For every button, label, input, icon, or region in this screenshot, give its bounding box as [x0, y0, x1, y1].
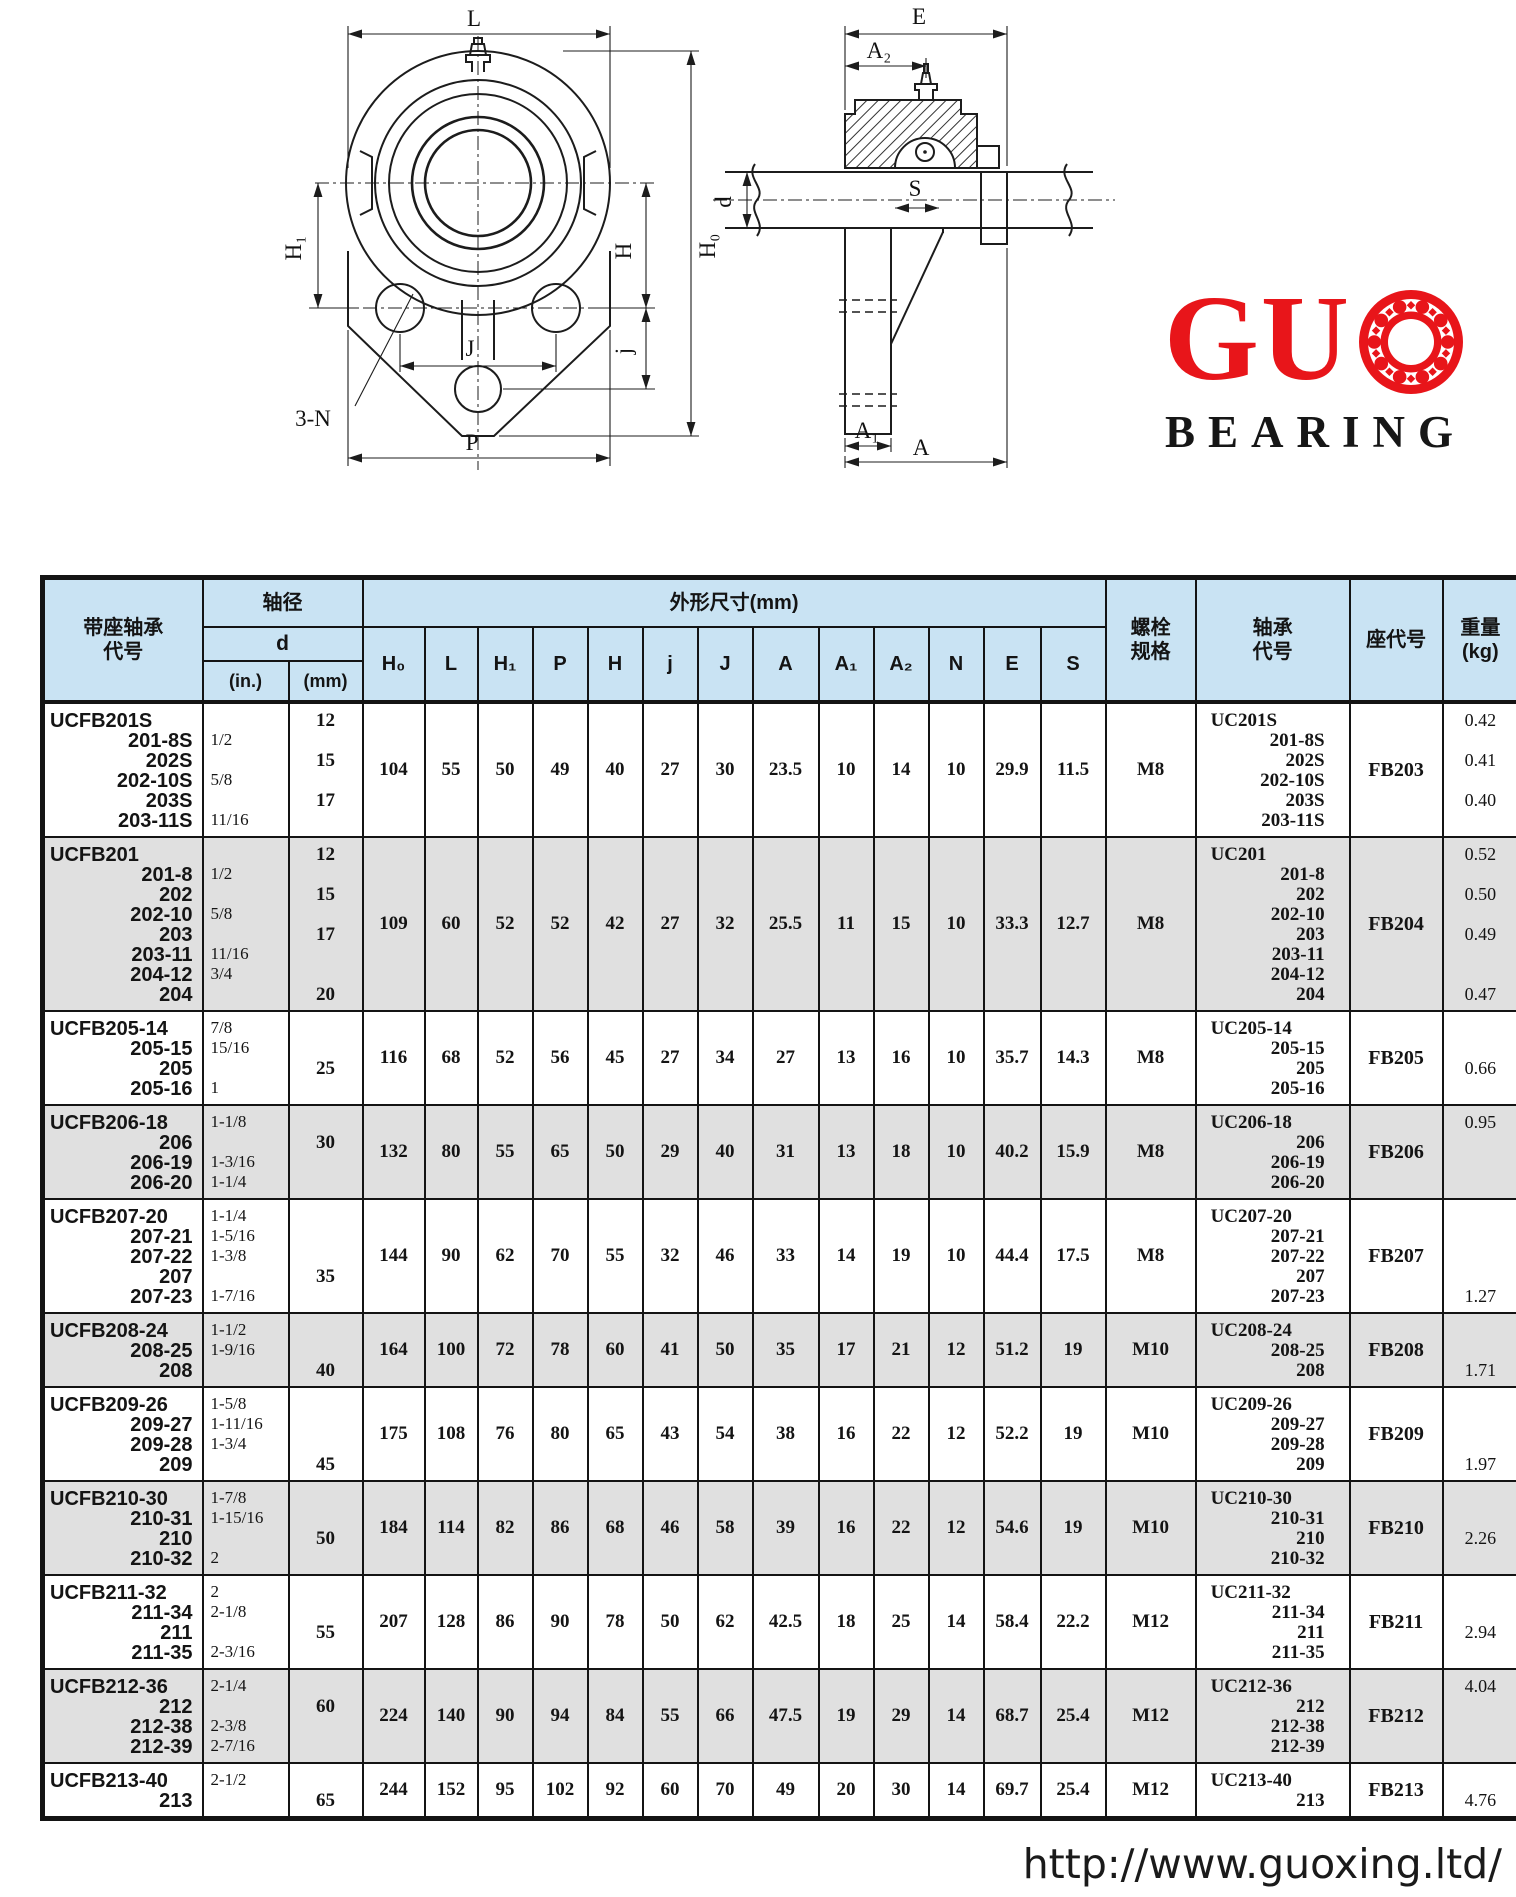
shaft-inch-cell: 2-1/4 2-3/82-7/16	[203, 1669, 289, 1763]
unit-code-cell: UCFB211-32211-34211211-35	[43, 1575, 203, 1669]
dim-cell-H₀: 144	[363, 1199, 425, 1313]
housing-code-cell: FB204	[1350, 837, 1443, 1011]
dim-cell-J: 58	[698, 1481, 753, 1575]
dim-cell-L: 100	[425, 1313, 478, 1387]
dim-cell-J: 70	[698, 1763, 753, 1819]
dim-cell-A₂: 22	[874, 1387, 929, 1481]
header-dim-A₁: A₁	[819, 627, 874, 702]
bearing-code-cell: UC205-14205-15205205-16	[1196, 1011, 1350, 1105]
spec-table-body: UCFB201S201-8S202S202-10S203S203-11S 1/2…	[43, 702, 1516, 1819]
dim-cell-H₀: 175	[363, 1387, 425, 1481]
dim-cell-E: 29.9	[984, 702, 1041, 837]
header-dims-title: 外形尺寸(mm)	[363, 578, 1106, 628]
bearing-code-cell: UC211-32211-34211211-35	[1196, 1575, 1350, 1669]
header-dim-S: S	[1041, 627, 1106, 702]
header-housing-code: 座代号	[1350, 578, 1443, 703]
housing-code-cell: FB203	[1350, 702, 1443, 837]
shaft-inch-cell: 1-1/41-5/161-3/8 1-7/16	[203, 1199, 289, 1313]
dim-cell-N: 10	[929, 1199, 984, 1313]
weight-cell: 0.52 0.50 0.49 0.47	[1443, 837, 1516, 1011]
dim-cell-N: 14	[929, 1575, 984, 1669]
dim-cell-S: 22.2	[1041, 1575, 1106, 1669]
bolt-spec-cell: M8	[1106, 1011, 1196, 1105]
dim-cell-J: 62	[698, 1575, 753, 1669]
dim-cell-S: 19	[1041, 1387, 1106, 1481]
dim-cell-E: 33.3	[984, 837, 1041, 1011]
spec-row-UCFB205-14: UCFB205-14205-15205205-167/815/16 1 25 1…	[43, 1011, 1516, 1105]
unit-code-cell: UCFB205-14205-15205205-16	[43, 1011, 203, 1105]
dim-cell-A: 38	[753, 1387, 819, 1481]
dim-cell-N: 10	[929, 1105, 984, 1199]
dim-cell-N: 12	[929, 1387, 984, 1481]
header-dim-H₀: H₀	[363, 627, 425, 702]
dim-cell-H₀: 224	[363, 1669, 425, 1763]
unit-code-cell: UCFB201201-8202202-10203203-11204-12204	[43, 837, 203, 1011]
dim-cell-E: 58.4	[984, 1575, 1041, 1669]
dim-cell-A₁: 19	[819, 1669, 874, 1763]
housing-code-cell: FB213	[1350, 1763, 1443, 1819]
header-dim-H₁: H₁	[478, 627, 533, 702]
bolt-spec-cell: M8	[1106, 1105, 1196, 1199]
spec-row-UCFB210-30: UCFB210-30210-31210210-321-7/81-15/16 2 …	[43, 1481, 1516, 1575]
bearing-code-cell: UC207-20207-21207-22207207-23	[1196, 1199, 1350, 1313]
header-weight: 重量 (kg)	[1443, 578, 1516, 703]
dim-cell-P: 56	[533, 1011, 588, 1105]
dim-cell-J: 32	[698, 837, 753, 1011]
dim-cell-L: 114	[425, 1481, 478, 1575]
dim-cell-P: 102	[533, 1763, 588, 1819]
dim-cell-H: 78	[588, 1575, 643, 1669]
weight-cell: 0.95	[1443, 1105, 1516, 1199]
dim-cell-H: 68	[588, 1481, 643, 1575]
dim-cell-H₀: 184	[363, 1481, 425, 1575]
dim-cell-S: 25.4	[1041, 1669, 1106, 1763]
shaft-mm-cell: 60	[289, 1669, 363, 1763]
shaft-mm-cell: 25	[289, 1011, 363, 1105]
header-bolt-spec: 螺栓 规格	[1106, 578, 1196, 703]
bearing-code-cell: UC209-26209-27209-28209	[1196, 1387, 1350, 1481]
dim-cell-S: 17.5	[1041, 1199, 1106, 1313]
guo-logo: GU	[1118, 278, 1513, 458]
dim-cell-j: 27	[643, 837, 698, 1011]
unit-code-cell: UCFB201S201-8S202S202-10S203S203-11S	[43, 702, 203, 837]
bearing-code-cell: UC210-30210-31210210-32	[1196, 1481, 1350, 1575]
shaft-mm-cell: 30	[289, 1105, 363, 1199]
weight-cell: 4.04	[1443, 1669, 1516, 1763]
header-dim-P: P	[533, 627, 588, 702]
shaft-mm-cell: 65	[289, 1763, 363, 1819]
unit-code-cell: UCFB208-24208-25208	[43, 1313, 203, 1387]
dim-cell-H: 92	[588, 1763, 643, 1819]
dim-cell-j: 29	[643, 1105, 698, 1199]
housing-code-cell: FB209	[1350, 1387, 1443, 1481]
dim-cell-N: 10	[929, 702, 984, 837]
header-dim-N: N	[929, 627, 984, 702]
dim-cell-A₂: 16	[874, 1011, 929, 1105]
header-unit-code: 带座轴承 代号	[43, 578, 203, 703]
dim-label-j: j	[611, 348, 636, 355]
dim-cell-N: 10	[929, 837, 984, 1011]
housing-code-cell: FB206	[1350, 1105, 1443, 1199]
shaft-mm-cell: 40	[289, 1313, 363, 1387]
unit-code-cell: UCFB209-26209-27209-28209	[43, 1387, 203, 1481]
dim-cell-J: 66	[698, 1669, 753, 1763]
housing-code-cell: FB208	[1350, 1313, 1443, 1387]
dim-cell-H: 84	[588, 1669, 643, 1763]
housing-code-cell: FB205	[1350, 1011, 1443, 1105]
dim-cell-E: 54.6	[984, 1481, 1041, 1575]
dim-cell-P: 49	[533, 702, 588, 837]
dim-cell-A₂: 21	[874, 1313, 929, 1387]
dim-cell-j: 27	[643, 1011, 698, 1105]
spec-row-UCFB212-36: UCFB212-36212212-38212-392-1/4 2-3/82-7/…	[43, 1669, 1516, 1763]
spec-row-UCFB211-32: UCFB211-32211-34211211-3522-1/8 2-3/16 5…	[43, 1575, 1516, 1669]
dim-cell-S: 15.9	[1041, 1105, 1106, 1199]
dim-cell-H₀: 207	[363, 1575, 425, 1669]
set-screw	[977, 146, 999, 168]
dim-cell-A₂: 14	[874, 702, 929, 837]
shaft-inch-cell: 1-1/21-9/16	[203, 1313, 289, 1387]
dim-cell-j: 50	[643, 1575, 698, 1669]
spec-row-UCFB206-18: UCFB206-18206206-19206-201-1/8 1-3/161-1…	[43, 1105, 1516, 1199]
shaft-inch-cell: 1-1/8 1-3/161-1/4	[203, 1105, 289, 1199]
shaft-mm-cell: 50	[289, 1481, 363, 1575]
dim-cell-P: 86	[533, 1481, 588, 1575]
dim-cell-A₂: 19	[874, 1199, 929, 1313]
dim-cell-L: 68	[425, 1011, 478, 1105]
dim-label-A2: A₂	[867, 38, 892, 63]
logo-gu-text: GU	[1164, 278, 1351, 400]
dim-cell-N: 12	[929, 1313, 984, 1387]
dim-cell-L: 140	[425, 1669, 478, 1763]
dim-cell-j: 43	[643, 1387, 698, 1481]
dim-cell-E: 51.2	[984, 1313, 1041, 1387]
dim-cell-E: 52.2	[984, 1387, 1041, 1481]
bearing-code-cell: UC201S201-8S202S202-10S203S203-11S	[1196, 702, 1350, 837]
unit-code-cell: UCFB210-30210-31210210-32	[43, 1481, 203, 1575]
weight-cell: 1.71	[1443, 1313, 1516, 1387]
dim-label-P: P	[466, 430, 479, 455]
weight-cell: 1.27	[1443, 1199, 1516, 1313]
dim-cell-P: 52	[533, 837, 588, 1011]
spec-row-UCFB207-20: UCFB207-20207-21207-22207207-231-1/41-5/…	[43, 1199, 1516, 1313]
shaft-mm-cell: 55	[289, 1575, 363, 1669]
dim-cell-S: 19	[1041, 1313, 1106, 1387]
housing-code-cell: FB210	[1350, 1481, 1443, 1575]
header-dim-A₂: A₂	[874, 627, 929, 702]
dim-label-A1: A₁	[855, 418, 880, 443]
dim-cell-j: 32	[643, 1199, 698, 1313]
dim-cell-A₁: 16	[819, 1481, 874, 1575]
bolt-spec-cell: M12	[1106, 1575, 1196, 1669]
website-url: http://www.guoxing.ltd/	[1023, 1840, 1502, 1888]
dim-cell-P: 94	[533, 1669, 588, 1763]
shaft-inch-cell: 1-5/81-11/161-3/4	[203, 1387, 289, 1481]
dim-cell-P: 65	[533, 1105, 588, 1199]
dim-cell-J: 30	[698, 702, 753, 837]
dim-cell-H₁: 86	[478, 1575, 533, 1669]
dim-cell-H₁: 52	[478, 837, 533, 1011]
dim-cell-H: 55	[588, 1199, 643, 1313]
shaft-inch-cell: 7/815/16 1	[203, 1011, 289, 1105]
dim-cell-H₁: 76	[478, 1387, 533, 1481]
dim-cell-S: 12.7	[1041, 837, 1106, 1011]
dim-cell-H: 42	[588, 837, 643, 1011]
dim-cell-A₁: 10	[819, 702, 874, 837]
dim-label-A: A	[913, 435, 930, 460]
weight-cell: 0.66	[1443, 1011, 1516, 1105]
dim-cell-j: 46	[643, 1481, 698, 1575]
housing-code-cell: FB212	[1350, 1669, 1443, 1763]
dim-cell-H₀: 132	[363, 1105, 425, 1199]
dim-cell-P: 70	[533, 1199, 588, 1313]
shaft-mm-cell: 12 15 17	[289, 702, 363, 837]
spec-row-UCFB208-24: UCFB208-24208-252081-1/21-9/16 401641007…	[43, 1313, 1516, 1387]
dim-cell-H: 50	[588, 1105, 643, 1199]
header-dim-L: L	[425, 627, 478, 702]
dim-cell-J: 54	[698, 1387, 753, 1481]
dim-cell-A₂: 18	[874, 1105, 929, 1199]
dim-cell-N: 10	[929, 1011, 984, 1105]
dim-cell-L: 55	[425, 702, 478, 837]
dim-cell-J: 34	[698, 1011, 753, 1105]
dim-cell-H₁: 62	[478, 1199, 533, 1313]
dim-cell-A₂: 15	[874, 837, 929, 1011]
bolt-spec-cell: M12	[1106, 1763, 1196, 1819]
shaft-mm-cell: 45	[289, 1387, 363, 1481]
dim-cell-A₁: 14	[819, 1199, 874, 1313]
bearing-code-cell: UC206-18206206-19206-20	[1196, 1105, 1350, 1199]
header-dim-H: H	[588, 627, 643, 702]
shaft-mm-cell: 35	[289, 1199, 363, 1313]
shaft-inch-cell: 2-1/2	[203, 1763, 289, 1819]
spec-table: 带座轴承 代号 轴径 外形尺寸(mm) 螺栓 规格 轴承 代号 座代号 重量 (…	[40, 575, 1516, 1821]
dim-cell-H₀: 109	[363, 837, 425, 1011]
header-mm: (mm)	[289, 661, 363, 702]
shaft-inch-cell: 1/2 5/8 11/163/4	[203, 837, 289, 1011]
dim-cell-H₁: 50	[478, 702, 533, 837]
header-dim-j: j	[643, 627, 698, 702]
dim-cell-L: 60	[425, 837, 478, 1011]
header-d: d	[203, 627, 363, 661]
dim-cell-P: 78	[533, 1313, 588, 1387]
bearing-code-cell: UC213-40213	[1196, 1763, 1350, 1819]
dim-cell-L: 108	[425, 1387, 478, 1481]
spec-table-header: 带座轴承 代号 轴径 外形尺寸(mm) 螺栓 规格 轴承 代号 座代号 重量 (…	[43, 578, 1516, 703]
collar	[981, 172, 1007, 244]
dim-cell-H₁: 52	[478, 1011, 533, 1105]
dim-cell-S: 19	[1041, 1481, 1106, 1575]
dim-cell-E: 69.7	[984, 1763, 1041, 1819]
dim-cell-A: 27	[753, 1011, 819, 1105]
dim-cell-H: 65	[588, 1387, 643, 1481]
dim-label-H: H	[611, 243, 636, 260]
dim-cell-H₁: 55	[478, 1105, 533, 1199]
dim-cell-A₂: 25	[874, 1575, 929, 1669]
dim-label-L: L	[467, 8, 481, 31]
shaft-inch-cell: 22-1/8 2-3/16	[203, 1575, 289, 1669]
dim-cell-P: 80	[533, 1387, 588, 1481]
dim-cell-H₁: 90	[478, 1669, 533, 1763]
bolt-spec-cell: M8	[1106, 837, 1196, 1011]
bearing-code-cell: UC208-24208-25208	[1196, 1313, 1350, 1387]
dim-cell-A₁: 16	[819, 1387, 874, 1481]
grease-nipple-side	[915, 84, 937, 100]
bolt-spec-cell: M10	[1106, 1481, 1196, 1575]
dim-cell-H₀: 164	[363, 1313, 425, 1387]
dim-cell-H₀: 116	[363, 1011, 425, 1105]
dim-label-E: E	[912, 4, 926, 29]
dim-cell-L: 80	[425, 1105, 478, 1199]
logo-bearing-text: BEARING	[1118, 406, 1513, 458]
dim-cell-J: 50	[698, 1313, 753, 1387]
dim-cell-A₂: 29	[874, 1669, 929, 1763]
housing-code-cell: FB211	[1350, 1575, 1443, 1669]
spec-row-UCFB201: UCFB201201-8202202-10203203-11204-12204 …	[43, 837, 1516, 1011]
dim-cell-L: 90	[425, 1199, 478, 1313]
weight-cell: 4.76	[1443, 1763, 1516, 1819]
header-dim-A: A	[753, 627, 819, 702]
dim-cell-J: 46	[698, 1199, 753, 1313]
dim-cell-J: 40	[698, 1105, 753, 1199]
dim-cell-A: 25.5	[753, 837, 819, 1011]
shaft-inch-cell: 1/2 5/8 11/16	[203, 702, 289, 837]
dim-cell-A: 33	[753, 1199, 819, 1313]
unit-code-cell: UCFB206-18206206-19206-20	[43, 1105, 203, 1199]
dim-cell-H₁: 72	[478, 1313, 533, 1387]
dim-cell-A₂: 30	[874, 1763, 929, 1819]
dim-cell-j: 41	[643, 1313, 698, 1387]
dim-cell-A₁: 20	[819, 1763, 874, 1819]
spec-row-UCFB213-40: UCFB213-402132-1/2 652441529510292607049…	[43, 1763, 1516, 1819]
dim-cell-H₀: 104	[363, 702, 425, 837]
bolt-spec-cell: M10	[1106, 1387, 1196, 1481]
dim-cell-L: 152	[425, 1763, 478, 1819]
bolt-spec-cell: M8	[1106, 1199, 1196, 1313]
dim-cell-S: 14.3	[1041, 1011, 1106, 1105]
dim-cell-j: 27	[643, 702, 698, 837]
dim-cell-A₁: 13	[819, 1011, 874, 1105]
header-dim-E: E	[984, 627, 1041, 702]
front-view-diagram: 3-N L H₁ J H j H₀ P	[262, 8, 744, 478]
dim-cell-N: 12	[929, 1481, 984, 1575]
unit-code-cell: UCFB213-40213	[43, 1763, 203, 1819]
dim-cell-j: 60	[643, 1763, 698, 1819]
dim-cell-A: 49	[753, 1763, 819, 1819]
dim-cell-H: 60	[588, 1313, 643, 1387]
dim-cell-H: 40	[588, 702, 643, 837]
dim-cell-L: 128	[425, 1575, 478, 1669]
dim-cell-P: 90	[533, 1575, 588, 1669]
dim-cell-H₁: 82	[478, 1481, 533, 1575]
dim-cell-S: 11.5	[1041, 702, 1106, 837]
shaft-mm-cell: 12 15 17 20	[289, 837, 363, 1011]
bolt-spec-cell: M8	[1106, 702, 1196, 837]
dim-cell-E: 68.7	[984, 1669, 1041, 1763]
dim-cell-E: 44.4	[984, 1199, 1041, 1313]
dim-cell-A₁: 11	[819, 837, 874, 1011]
dim-cell-H₁: 95	[478, 1763, 533, 1819]
dim-cell-A: 39	[753, 1481, 819, 1575]
weight-cell: 1.97	[1443, 1387, 1516, 1481]
weight-cell: 0.42 0.41 0.40	[1443, 702, 1516, 837]
side-view-diagram: E A₂ S d A₁ A	[695, 0, 1125, 470]
spec-row-UCFB201S: UCFB201S201-8S202S202-10S203S203-11S 1/2…	[43, 702, 1516, 837]
shaft-inch-cell: 1-7/81-15/16 2	[203, 1481, 289, 1575]
unit-code-cell: UCFB212-36212212-38212-39	[43, 1669, 203, 1763]
dim-cell-A: 31	[753, 1105, 819, 1199]
header-inch: (in.)	[203, 661, 289, 702]
dim-cell-H: 45	[588, 1011, 643, 1105]
bearing-o-icon	[1355, 286, 1467, 398]
header-bearing-code: 轴承 代号	[1196, 578, 1350, 703]
dim-cell-A: 47.5	[753, 1669, 819, 1763]
weight-cell: 2.94	[1443, 1575, 1516, 1669]
dim-cell-E: 35.7	[984, 1011, 1041, 1105]
bearing-code-cell: UC212-36212212-38212-39	[1196, 1669, 1350, 1763]
dim-cell-A: 42.5	[753, 1575, 819, 1669]
bolt-spec-cell: M12	[1106, 1669, 1196, 1763]
dim-label-S: S	[909, 176, 922, 201]
header-shaft-dia: 轴径	[203, 578, 363, 628]
dim-cell-A: 23.5	[753, 702, 819, 837]
dim-cell-N: 14	[929, 1669, 984, 1763]
header-dim-J: J	[698, 627, 753, 702]
dim-label-3N: 3-N	[295, 406, 331, 431]
spec-row-UCFB209-26: UCFB209-26209-27209-282091-5/81-11/161-3…	[43, 1387, 1516, 1481]
weight-cell: 2.26	[1443, 1481, 1516, 1575]
dim-label-J: J	[466, 336, 475, 361]
dim-cell-S: 25.4	[1041, 1763, 1106, 1819]
dim-cell-E: 40.2	[984, 1105, 1041, 1199]
bearing-code-cell: UC201201-8202202-10203203-11204-12204	[1196, 837, 1350, 1011]
dim-cell-A: 35	[753, 1313, 819, 1387]
dim-cell-j: 55	[643, 1669, 698, 1763]
dim-cell-H₀: 244	[363, 1763, 425, 1819]
dim-cell-A₁: 13	[819, 1105, 874, 1199]
catalog-page: 3-N L H₁ J H j H₀ P	[0, 0, 1516, 1897]
plate-section	[845, 228, 891, 434]
dim-cell-A₁: 18	[819, 1575, 874, 1669]
unit-code-cell: UCFB207-20207-21207-22207207-23	[43, 1199, 203, 1313]
dim-cell-A₁: 17	[819, 1313, 874, 1387]
bolt-spec-cell: M10	[1106, 1313, 1196, 1387]
dim-label-d: d	[711, 196, 736, 208]
housing-code-cell: FB207	[1350, 1199, 1443, 1313]
dim-label-H1: H₁	[281, 236, 306, 261]
dim-cell-A₂: 22	[874, 1481, 929, 1575]
dim-cell-N: 14	[929, 1763, 984, 1819]
